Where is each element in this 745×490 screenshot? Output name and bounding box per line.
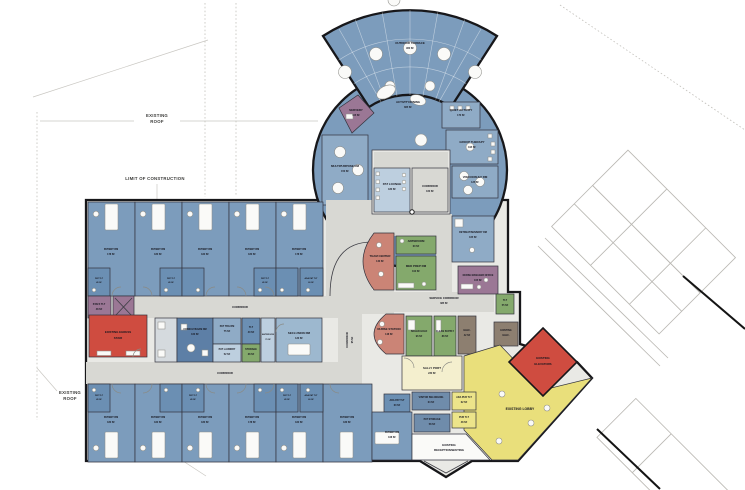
bed [246,432,259,458]
room-label: ELEC. [463,329,470,332]
patient-rooms-bottom [88,384,372,462]
central-core [155,318,322,362]
chair [140,445,146,451]
svg-text:960 SF: 960 SF [406,47,414,50]
corridor-label: CORRIDOR [232,305,249,309]
svg-text:115 SF: 115 SF [352,114,360,117]
room-seclusion [276,318,322,362]
svg-text:70 SF: 70 SF [265,339,271,341]
corridor-clinical-v [436,236,452,292]
room-label: ADA PAT TLT [305,394,319,397]
svg-text:160 SF: 160 SF [191,333,199,336]
svg-text:96 SF: 96 SF [416,335,423,338]
svg-text:140 SF: 140 SF [376,260,384,263]
bed [199,204,212,230]
existing-building-outline [538,150,745,490]
room-label: GROUP THERAPY [459,140,484,144]
chair [380,322,385,327]
room-label: MED PREP RM [406,264,427,268]
floor-plan-sheet: EXISTING ROOF LIMIT OF CONSTRUCTION EXIS… [0,0,745,490]
pat-toilet [88,384,110,412]
chair [234,445,240,451]
svg-text:170 SF: 170 SF [457,114,465,117]
svg-text:385 SF: 385 SF [440,302,448,305]
svg-text:45 SF: 45 SF [96,281,102,284]
room-label: PAT TLT [95,394,104,397]
svg-text:148 SF: 148 SF [385,333,393,336]
svg-text:62 SF: 62 SF [461,401,468,404]
chair [402,180,406,184]
room-label: CLEAN SUPPLY [436,330,455,333]
table [469,66,482,79]
svg-text:180 SF: 180 SF [107,421,115,424]
svg-text:120 SF: 120 SF [295,337,303,340]
lounge-corridor-top [374,152,448,168]
svg-text:182 SF: 182 SF [154,421,162,424]
room-label: SOILED HOLD [411,330,428,333]
room-label: PAT TLT [189,394,198,397]
svg-text:STAIR: STAIR [114,336,123,340]
table [335,147,346,158]
chair [93,211,99,217]
svg-text:230 SF: 230 SF [428,372,436,375]
column [499,391,505,397]
svg-text:60 SF: 60 SF [413,245,420,248]
pat-toilet [160,384,182,412]
bed [199,432,212,458]
table [370,48,383,61]
svg-text:75 SF: 75 SF [224,330,231,333]
room-label: PATIENT RM [292,416,306,419]
bed [152,204,165,230]
room-label: ANTEROOM [262,333,274,336]
svg-text:150 SF: 150 SF [341,170,349,173]
room-label: EXISTING EGRESS [105,330,131,334]
room-label: PAT TRG RM [220,325,235,328]
room-label: QUIET ACTIVITY [450,108,473,112]
chair [488,134,492,138]
room-label: SECLUSION RM [288,331,311,335]
room-label: PAT TLT [261,277,270,280]
table [187,344,195,352]
svg-text:45 SF: 45 SF [168,281,174,284]
svg-text:60 SF: 60 SF [394,404,401,407]
pat-toilet [276,268,298,296]
room-label: ADA PAT TLT [305,277,319,280]
svg-text:165 SF: 165 SF [469,236,477,239]
room-label: NURSE MANAGER OFFICE [463,274,494,277]
chair [488,157,492,161]
bed [340,432,353,458]
svg-text:48 SF: 48 SF [96,308,103,311]
chair [402,187,406,191]
room-label: VIS/CONSULT RM [463,175,488,179]
corridor-label: CORRIDOR [345,331,349,348]
room-label: TLT [503,299,508,302]
table [339,66,352,79]
svg-text:RECEPTION/WAITING: RECEPTION/WAITING [434,448,465,452]
bed [293,204,306,230]
room-label: MULTIPURPOSE RM [331,164,360,168]
existing-roof-label: EXISTING [59,390,81,395]
chair [140,211,146,217]
chair [93,445,99,451]
chair [376,180,380,184]
svg-text:195 SF: 195 SF [468,146,476,149]
room-label: PATIENT RM [198,248,212,251]
room-label: STORAGE [245,348,257,351]
svg-text:58 SF: 58 SF [429,423,436,426]
bed [152,432,165,458]
chair [377,243,382,248]
room-label: PUB TLT [459,416,469,419]
svg-text:105 SF: 105 SF [474,279,482,282]
room-label: PATIENT RM [292,248,306,251]
room-label: PATIENT RM [198,416,212,419]
room-label: ANTEROOM [408,239,425,243]
column [544,405,550,411]
svg-text:55 SF: 55 SF [502,304,509,307]
svg-text:125 SF: 125 SF [471,181,479,184]
chair [202,350,208,356]
svg-text:865 SF: 865 SF [404,106,412,109]
chair [491,142,495,146]
room-label: PAT STORAGE [424,418,441,421]
svg-text:42 SF: 42 SF [464,334,471,337]
svg-text:182 SF: 182 SF [201,253,209,256]
bed [293,432,306,458]
svg-text:88 SF: 88 SF [442,335,449,338]
existing-roof-label: EXISTING [146,113,168,118]
svg-text:60 SF: 60 SF [308,282,314,284]
chair [378,340,383,345]
room-label: PAT TLT [283,394,292,397]
pat-toilet [276,384,298,412]
room-label: EXISTING LOBBY [506,407,535,411]
svg-text:45 SF: 45 SF [96,398,102,401]
room-label: PATIENT RM [245,248,259,251]
column [496,438,502,444]
svg-text:60 SF: 60 SF [308,399,314,401]
chair [187,445,193,451]
table [333,183,344,194]
svg-text:180 SF: 180 SF [388,188,396,191]
room-label: PATIENT RM [340,416,354,419]
room-label: EXISTING [442,443,456,447]
table [425,81,435,91]
corridor-label: CORRIDOR [422,184,439,188]
room-label: EXISTING [536,356,550,360]
svg-text:160 SF: 160 SF [426,190,434,193]
chair [376,188,380,192]
room-label: SERVERY [349,108,363,112]
column [410,210,414,214]
room-ada-pat-tlt-s [384,394,410,412]
room-label: EXISTING [500,329,511,332]
room-label: PAT LOUNGE [383,182,402,186]
ada-pat-toilet [300,384,323,412]
svg-text:102 SF: 102 SF [412,270,420,273]
svg-text:45 SF: 45 SF [190,398,196,401]
svg-text:180 SF: 180 SF [248,253,256,256]
table [388,0,400,6]
svg-text:ELEC.: ELEC. [502,334,509,337]
room-label: ADA PUB TLT [456,396,472,399]
svg-text:178 SF: 178 SF [107,253,115,256]
room-label: PATIENT RM [151,248,165,251]
room-label: PATIENT RM [104,416,118,419]
svg-text:45 SF: 45 SF [284,398,290,401]
room-label: TLT [249,326,254,329]
svg-text:40 SF: 40 SF [248,331,255,334]
corridor-team-front [350,290,394,314]
limit-of-construction-label: LIMIT OF CONSTRUCTION [125,176,184,181]
svg-text:180 SF: 180 SF [154,253,162,256]
bed [105,432,118,458]
bed [246,204,259,230]
floor-plan-drawing: EXISTING ROOF LIMIT OF CONSTRUCTION EXIS… [0,0,745,490]
pat-toilet [182,384,204,412]
svg-text:95 SF: 95 SF [351,336,354,343]
room-label: PATIENT RM [151,416,165,419]
room-label: TEAM CENTER [370,254,392,258]
room-label: ADA PAT TLT [389,399,405,402]
chair [281,445,287,451]
room-label: PAT TLT [95,277,104,280]
chair [187,211,193,217]
svg-text:178 SF: 178 SF [295,253,303,256]
pat-toilet [182,268,204,296]
svg-text:64 SF: 64 SF [428,401,435,404]
chair [234,211,240,217]
bed [105,204,118,230]
chair [376,196,380,200]
svg-text:ROOF: ROOF [63,396,77,401]
room-label: OUTDOOR TERRACE [395,41,425,45]
table [415,134,427,146]
svg-text:38 SF: 38 SF [248,353,255,356]
svg-text:52 SF: 52 SF [224,353,231,356]
room-label: VISITOR BELONGING [419,396,444,399]
chair [402,173,406,177]
room-label: PAT LAUNDRY [219,348,236,351]
room-label: CONSULT/EXAM RM [183,328,206,331]
room-label: STAFF TLT [93,303,106,306]
room-label: ACTIVITY/DINING [396,100,421,104]
table [464,186,473,195]
svg-text:178 SF: 178 SF [248,421,256,424]
svg-text:48 SF: 48 SF [461,421,468,424]
svg-text:ELEVATORS: ELEVATORS [534,362,551,366]
room-label: RETREAT/SENSORY RM [459,231,487,234]
corridor-link [338,318,362,362]
svg-text:182 SF: 182 SF [295,421,303,424]
svg-text:168 SF: 168 SF [388,436,396,439]
room-label: NURSE STATION [377,327,400,331]
svg-text:186 SF: 186 SF [343,421,351,424]
room-pub-tlt [452,412,476,428]
chair [491,150,495,154]
room-label: PATIENT RM [245,416,259,419]
column [528,420,534,426]
bed [288,344,310,355]
room-label: PATIENT RM [104,248,118,251]
room-label: PATIENT RM [385,431,399,434]
corridor-label: CORRIDOR [217,371,234,375]
svg-text:ROOF: ROOF [150,119,164,124]
chair [376,172,380,176]
room-label: SALLY PORT [423,366,441,370]
room-label: PAT TLT [167,277,176,280]
corridor-upper [134,296,362,318]
corridor-label: SERVICE CORRIDOR [429,296,459,300]
svg-text:45 SF: 45 SF [262,281,268,284]
svg-text:180 SF: 180 SF [201,421,209,424]
chair [379,272,384,277]
table [438,48,451,61]
chair [281,211,287,217]
